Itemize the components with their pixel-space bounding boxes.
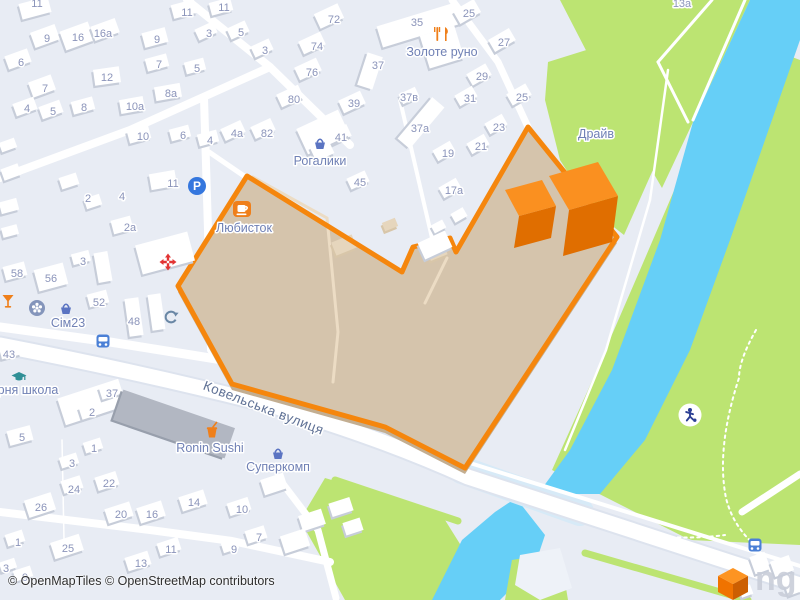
house-number-label: 1	[15, 537, 21, 549]
poi-label: рня школа	[0, 383, 58, 397]
house-number-label: 76	[306, 67, 318, 79]
house-number-label: 58	[11, 268, 23, 280]
house-number-label: 13а	[673, 0, 692, 10]
map-canvas[interactable]: P11111191616а93572671275374764588а10а808…	[0, 0, 800, 600]
house-number-label: 13	[135, 558, 147, 570]
house-number-label: 48	[128, 316, 140, 328]
house-number-label: 25	[62, 543, 74, 555]
house-number-label: 11	[165, 544, 176, 556]
house-number-label: 3	[80, 256, 86, 268]
house-number-label: 16а	[94, 28, 113, 40]
house-number-label: 4	[119, 191, 125, 203]
house-number-label: 9	[231, 544, 237, 556]
house-number-label: 11	[181, 7, 192, 19]
house-number-label: 14	[188, 497, 200, 509]
house-number-label: 80	[288, 94, 300, 106]
house-number-label: 29	[476, 71, 488, 83]
poi-label: Рогалики	[294, 154, 347, 168]
house-number-label: 4	[207, 135, 213, 147]
house-number-label: 16	[146, 509, 158, 521]
poi-label: Золоте руно	[406, 45, 477, 59]
house-number-label: 5	[19, 432, 25, 444]
house-number-label: 19	[442, 148, 454, 160]
house-number-label: 4	[24, 103, 30, 115]
house-number-label: 7	[156, 59, 162, 71]
house-number-label: 56	[45, 273, 57, 285]
house-number-label: 5	[238, 27, 244, 39]
house-number-label: 23	[493, 122, 505, 134]
house-number-label: 4а	[231, 128, 244, 140]
house-number-label: 7	[256, 532, 262, 544]
house-number-label: 31	[464, 93, 476, 105]
house-number-label: 26	[35, 502, 47, 514]
bus-icon[interactable]	[97, 335, 110, 348]
house-number-label: 10	[236, 504, 248, 516]
house-number-label: 3	[69, 458, 75, 470]
house-number-label: 10	[137, 131, 149, 143]
house-number-label: 8а	[165, 88, 178, 100]
bus-icon[interactable]	[749, 539, 762, 552]
house-number-label: 39	[348, 98, 360, 110]
svg-text:P: P	[193, 179, 201, 193]
house-number-label: 11	[218, 2, 229, 14]
house-number-label: 8	[81, 102, 87, 114]
house-number-label: 17а	[445, 185, 464, 197]
house-number-label: 2	[85, 193, 91, 205]
house-number-label: 37	[372, 60, 384, 72]
coffee-icon[interactable]	[233, 201, 251, 217]
house-number-label: 74	[311, 41, 323, 53]
house-number-label: 3	[262, 45, 268, 57]
house-number-label: 41	[335, 132, 347, 144]
house-number-label: 2	[89, 407, 95, 419]
house-number-label: 11	[31, 0, 42, 10]
house-number-label: 37в	[400, 92, 418, 104]
poi-label: Сім23	[51, 316, 85, 330]
poi-label: Ronin Sushi	[176, 441, 243, 455]
attribution: © OpenMapTiles © OpenStreetMap contribut…	[8, 574, 275, 588]
house-number-label: 5	[50, 106, 56, 118]
watermark-text: ng	[755, 560, 797, 599]
house-number-label: 43	[3, 349, 15, 361]
parking-icon[interactable]: P	[188, 177, 206, 195]
house-number-label: 24	[68, 484, 80, 496]
house-number-label: 45	[354, 177, 366, 189]
house-number-label: 72	[328, 14, 340, 26]
house-number-label: 27	[498, 37, 510, 49]
house-number-label: 10а	[126, 101, 145, 113]
house-number-label: 20	[115, 509, 127, 521]
poi-label: Суперкомп	[246, 460, 310, 474]
house-number-label: 9	[44, 33, 50, 45]
house-number-label: 3	[206, 28, 212, 40]
house-number-label: 1	[91, 443, 97, 455]
house-number-label: 16	[72, 32, 84, 44]
house-number-label: 35	[411, 17, 423, 29]
house-number-label: 37	[106, 388, 118, 400]
house-number-label: 37а	[411, 123, 430, 135]
house-number-label: 7	[42, 83, 48, 95]
house-number-label: 6	[180, 130, 186, 142]
house-number-label: 52	[93, 297, 105, 309]
house-number-label: 9	[154, 34, 160, 46]
house-number-label: 11	[167, 178, 178, 190]
house-number-label: 6	[18, 57, 24, 69]
poi-label: Любисток	[216, 221, 273, 235]
playground-icon[interactable]	[679, 404, 702, 427]
poi-label: Драйв	[578, 127, 614, 141]
house-number-label: 22	[103, 478, 115, 490]
house-number-label: 21	[475, 141, 487, 153]
house-number-label: 25	[463, 8, 475, 20]
map-stage: P11111191616а93572671275374764588а10а808…	[0, 0, 800, 600]
house-number-label: 5	[194, 63, 200, 75]
flower-icon[interactable]	[29, 300, 45, 316]
house-number-label: 12	[101, 72, 113, 84]
house-number-label: 25	[516, 92, 528, 104]
house-number-label: 2а	[124, 222, 137, 234]
house-number-label: 82	[261, 128, 273, 140]
